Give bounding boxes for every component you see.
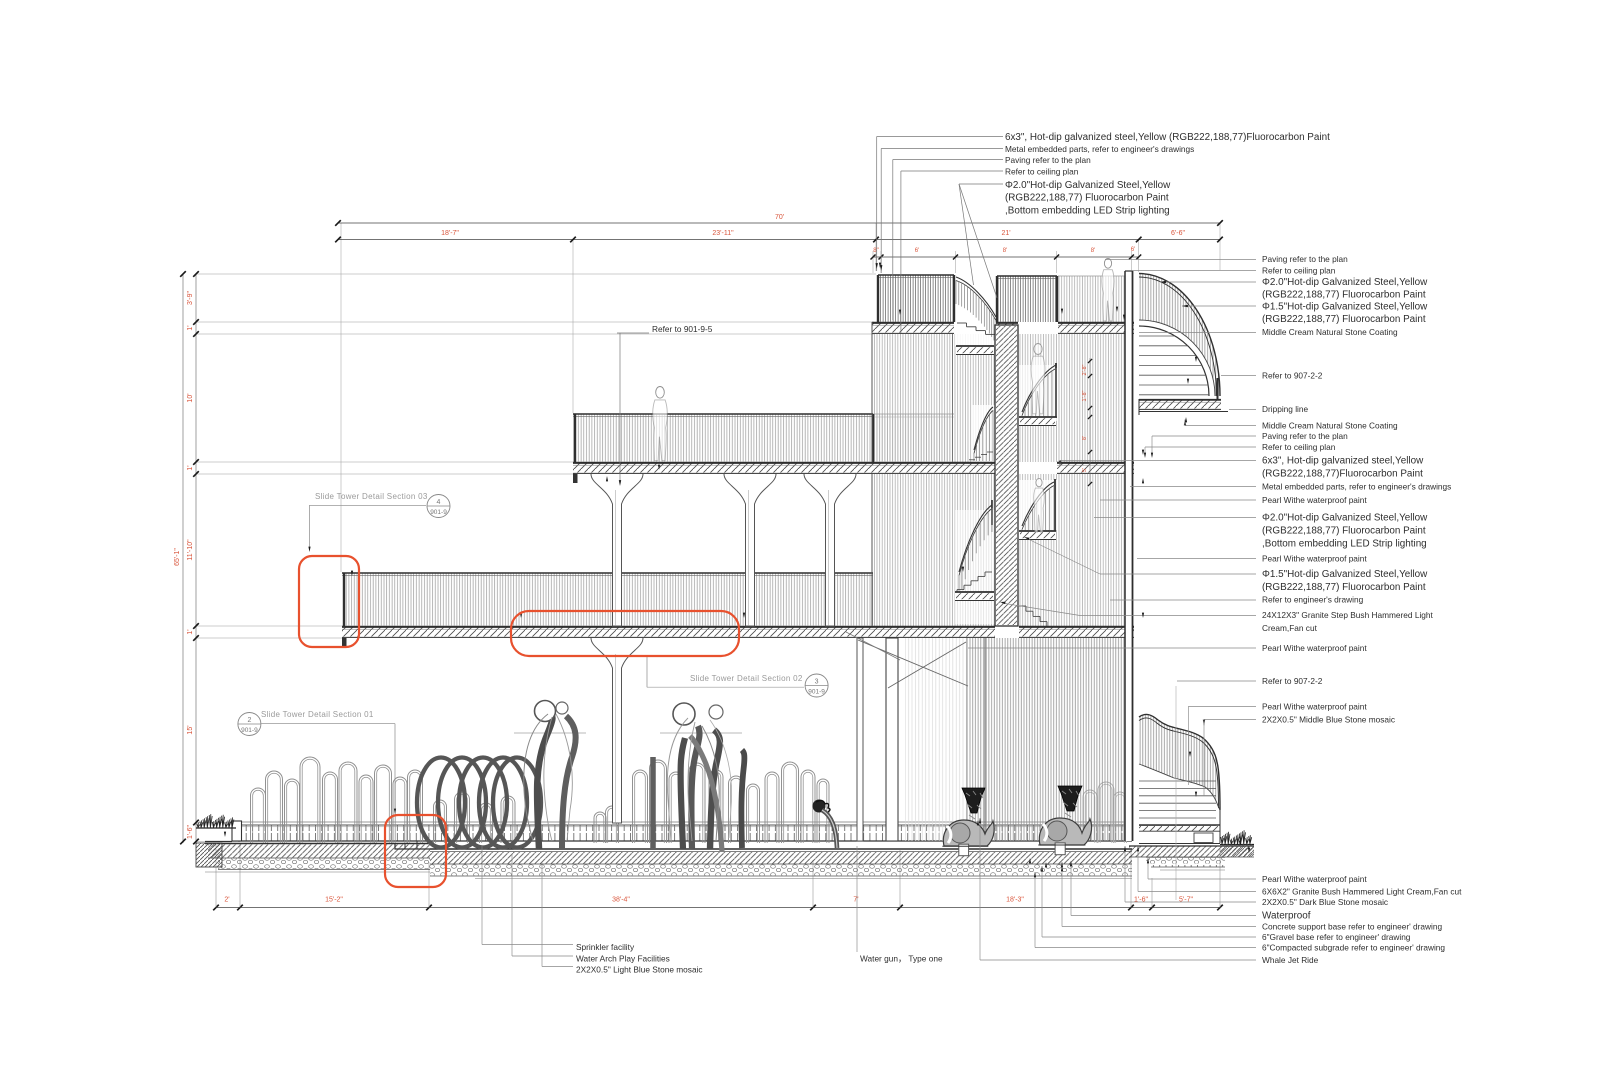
svg-text:Paving refer to the plan: Paving refer to the plan [1262, 431, 1348, 441]
svg-text:6x3", Hot-dip galvanized steel: 6x3", Hot-dip galvanized steel,Yellow [1262, 456, 1424, 467]
svg-text:Water gun， Type one: Water gun， Type one [860, 954, 943, 964]
svg-text:901-9: 901-9 [808, 689, 825, 696]
svg-text:23'-11": 23'-11" [712, 230, 734, 237]
svg-text:Metal embedded parts, refer to: Metal embedded parts, refer to engineer'… [1005, 144, 1194, 154]
svg-text:21': 21' [1001, 230, 1010, 237]
svg-text:Pearl Withe waterproof paint: Pearl Withe waterproof paint [1262, 874, 1367, 884]
svg-text:Slide Tower Detail Section 03: Slide Tower Detail Section 03 [315, 492, 428, 501]
svg-text:Whale Jet Ride: Whale Jet Ride [1262, 955, 1319, 965]
svg-text:2: 2 [247, 717, 251, 724]
svg-text:(RGB222,188,77) Fluorocarbon P: (RGB222,188,77) Fluorocarbon Paint [1005, 193, 1169, 204]
svg-text:Paving refer to the plan: Paving refer to the plan [1005, 155, 1091, 165]
svg-text:5'-7": 5'-7" [1179, 897, 1193, 904]
svg-text:1': 1' [187, 465, 194, 470]
svg-text:1': 1' [187, 325, 194, 330]
svg-text:18'-3": 18'-3" [1006, 897, 1024, 904]
svg-text:5': 5' [1082, 468, 1088, 472]
svg-text:Cream,Fan cut: Cream,Fan cut [1262, 623, 1318, 633]
svg-text:(RGB222,188,77) Fluorocarbon P: (RGB222,188,77) Fluorocarbon Paint [1262, 314, 1426, 325]
svg-text:6X6X2" Granite Bush Hammered L: 6X6X2" Granite Bush Hammered Light Cream… [1262, 887, 1462, 897]
svg-text:Φ1.5"Hot-dip Galvanized Steel,: Φ1.5"Hot-dip Galvanized Steel,Yellow [1262, 569, 1428, 580]
svg-text:8': 8' [1091, 248, 1095, 254]
svg-text:Pearl Withe waterproof paint: Pearl Withe waterproof paint [1262, 702, 1367, 712]
svg-text:11'-10": 11'-10" [187, 539, 194, 561]
svg-text:8': 8' [1082, 436, 1088, 440]
svg-text:3'-9": 3'-9" [187, 291, 194, 305]
svg-text:24X12X3" Granite Step Bush Ham: 24X12X3" Granite Step Bush Hammered Ligh… [1262, 610, 1434, 620]
svg-text:70': 70' [775, 214, 784, 221]
svg-text:15': 15' [187, 725, 194, 734]
svg-text:8': 8' [1003, 248, 1007, 254]
svg-text:2X2X0.5" Middle Blue Stone mos: 2X2X0.5" Middle Blue Stone mosaic [1262, 715, 1395, 725]
svg-text:,Bottom embedding LED Strip li: ,Bottom embedding LED Strip lighting [1005, 206, 1170, 217]
svg-text:Middle Cream Natural Stone Coa: Middle Cream Natural Stone Coating [1262, 327, 1398, 337]
svg-text:1'-6": 1'-6" [1134, 897, 1148, 904]
svg-text:Φ2.0"Hot-dip Galvanized Steel,: Φ2.0"Hot-dip Galvanized Steel,Yellow [1262, 513, 1428, 524]
svg-text:65'-1": 65'-1" [174, 548, 181, 566]
svg-text:(RGB222,188,77) Fluorocarbon P: (RGB222,188,77) Fluorocarbon Paint [1262, 526, 1426, 537]
svg-text:2': 2' [224, 897, 229, 904]
svg-text:1'-8": 1'-8" [1082, 390, 1088, 401]
svg-text:6'-6": 6'-6" [1171, 230, 1185, 237]
svg-text:,Bottom embedding LED Strip li: ,Bottom embedding LED Strip lighting [1262, 539, 1427, 550]
svg-text:Refer to 901-9-5: Refer to 901-9-5 [652, 324, 713, 334]
svg-text:6': 6' [1131, 247, 1135, 253]
svg-text:3: 3 [815, 679, 819, 686]
svg-text:Refer to ceiling plan: Refer to ceiling plan [1262, 442, 1336, 452]
svg-text:Metal embedded parts, refer to: Metal embedded parts, refer to engineer'… [1262, 482, 1451, 492]
svg-text:Pearl Withe waterproof paint: Pearl Withe waterproof paint [1262, 495, 1367, 505]
svg-text:6"Compacted subgrade refer to: 6"Compacted subgrade refer to engineer' … [1262, 943, 1445, 953]
svg-text:901-9: 901-9 [241, 727, 258, 734]
svg-text:Water Arch Play Facilities: Water Arch Play Facilities [576, 954, 670, 964]
svg-text:Waterproof: Waterproof [1262, 911, 1311, 922]
svg-text:Concrete support base refer to: Concrete support base refer to engineer'… [1262, 922, 1442, 932]
svg-text:901-9: 901-9 [430, 509, 447, 516]
svg-text:18'-7": 18'-7" [441, 230, 459, 237]
svg-text:Φ1.5"Hot-dip Galvanized Steel,: Φ1.5"Hot-dip Galvanized Steel,Yellow [1262, 302, 1428, 313]
svg-text:Slide Tower Detail Section 02: Slide Tower Detail Section 02 [690, 674, 803, 683]
svg-text:6x3", Hot-dip galvanized steel: 6x3", Hot-dip galvanized steel,Yellow (R… [1005, 132, 1330, 143]
svg-text:Dripping line: Dripping line [1262, 404, 1309, 414]
svg-text:7': 7' [853, 897, 858, 904]
svg-text:Pearl Withe waterproof paint: Pearl Withe waterproof paint [1262, 554, 1367, 564]
svg-text:4: 4 [437, 499, 441, 506]
svg-text:15'-2": 15'-2" [325, 897, 343, 904]
svg-text:Slide Tower Detail Section 01: Slide Tower Detail Section 01 [261, 710, 374, 719]
svg-text:Sprinkler facility: Sprinkler facility [576, 942, 635, 952]
svg-text:Middle Cream Natural Stone Coa: Middle Cream Natural Stone Coating [1262, 421, 1398, 431]
svg-text:2'-8": 2'-8" [1082, 364, 1088, 375]
svg-text:10': 10' [187, 393, 194, 402]
svg-text:Φ2.0"Hot-dip Galvanized Steel,: Φ2.0"Hot-dip Galvanized Steel,Yellow [1262, 277, 1428, 288]
svg-text:1': 1' [187, 629, 194, 634]
svg-text:Refer to engineer's drawing: Refer to engineer's drawing [1262, 595, 1364, 605]
svg-text:6"Gravel base refer to engine: 6"Gravel base refer to engineer' drawing [1262, 932, 1411, 942]
svg-text:Refer to 907-2-2: Refer to 907-2-2 [1262, 371, 1323, 381]
svg-text:2X2X0.5" Light Blue Stone mos: 2X2X0.5" Light Blue Stone mosaic [576, 965, 703, 975]
svg-text:(RGB222,188,77)Fluorocarbon Pa: (RGB222,188,77)Fluorocarbon Paint [1262, 469, 1423, 480]
svg-text:1'-6": 1'-6" [187, 825, 194, 839]
svg-text:38'-4": 38'-4" [612, 897, 630, 904]
svg-text:Pearl Withe waterproof paint: Pearl Withe waterproof paint [1262, 643, 1367, 653]
svg-text:Paving refer to the plan: Paving refer to the plan [1262, 254, 1348, 264]
svg-text:Refer to ceiling plan: Refer to ceiling plan [1262, 266, 1336, 276]
svg-text:8": 8" [873, 248, 878, 254]
svg-text:Φ2.0"Hot-dip Galvanized Steel,: Φ2.0"Hot-dip Galvanized Steel,Yellow [1005, 180, 1171, 191]
svg-text:(RGB222,188,77) Fluorocarbon P: (RGB222,188,77) Fluorocarbon Paint [1262, 582, 1426, 593]
svg-text:2X2X0.5" Dark Blue Stone mosai: 2X2X0.5" Dark Blue Stone mosaic [1262, 897, 1388, 907]
svg-text:6': 6' [915, 248, 919, 254]
svg-text:Refer to 907-2-2: Refer to 907-2-2 [1262, 676, 1323, 686]
svg-text:(RGB222,188,77) Fluorocarbon P: (RGB222,188,77) Fluorocarbon Paint [1262, 290, 1426, 301]
svg-text:Refer to ceiling plan: Refer to ceiling plan [1005, 167, 1079, 177]
